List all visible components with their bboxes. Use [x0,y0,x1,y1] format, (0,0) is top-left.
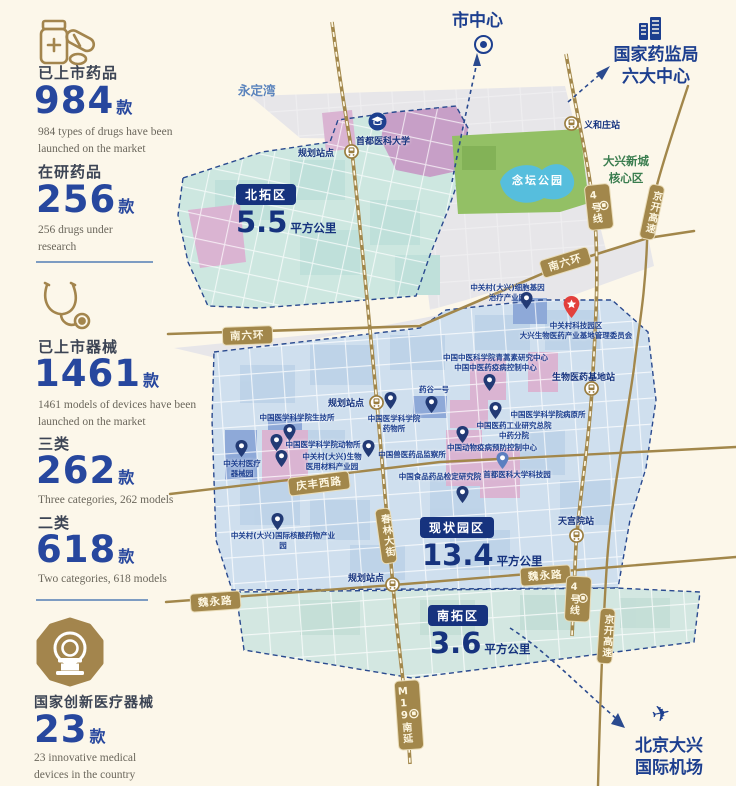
map-pin [456,426,469,443]
facility-label-animal-institute: 中国医学科学院动物所 [284,440,362,450]
map-pin [520,292,533,309]
planned-station-label: 规划站点 [348,571,384,584]
south-zone-area-number: 3.6 [430,626,481,660]
class-two-value: 618款 [36,531,134,568]
rail-badge-label: M19南延 [397,686,412,745]
innovative-device-unit: 款 [90,727,106,746]
city-center-icon [474,35,493,54]
class-two-caption: Two categories, 618 models [38,571,203,588]
device-launched-value: 1461款 [34,355,159,392]
niantan-park-label: 念坛公园 [512,172,564,188]
facility-label-management-committee: 中关村科技园区 大兴生物医药产业基地管理委员会 [516,321,636,341]
map-pin [425,396,438,413]
facility-label-biomedical-materials-park: 中关村(大兴)生物 医用材料产业园 [298,452,366,472]
metro-station-icon [584,381,599,396]
drug-launched-unit: 款 [116,98,132,117]
stethoscope-icon [38,280,94,336]
south-zone-badge: 南拓区 [428,605,488,626]
drug-launched-value: 984款 [34,82,132,119]
map-pin [496,452,509,469]
rail-badge-line4: 4号线 [564,575,592,622]
rail-badge-label: 4号线 [587,190,601,225]
planned-station-label: 规划站点 [298,146,334,159]
drug-launched-caption: 984 types of drugs have been launched on… [38,124,178,157]
metro-station-icon [569,528,584,543]
north-zone-area-number: 5.5 [236,205,287,239]
management-committee-pin [563,296,580,318]
innovative-device-number: 23 [34,708,88,751]
class-three-caption: Three categories, 262 models [38,492,203,509]
current-zone-badge: 现状园区 [420,517,494,538]
drug-research-value: 256款 [36,181,134,218]
metro-station-icon [385,577,400,592]
metro-station-icon [344,144,359,159]
rail-badge-label: 4号线 [567,581,579,616]
class-three-value: 262款 [36,452,134,489]
nmpa-centers-label: 国家药监局 六大中心 [598,44,714,88]
tiangongyuan-station-label: 天宫院站 [558,514,594,527]
drug-research-caption: 256 drugs under research [38,222,178,255]
facility-label-pathogen-institute: 中国医学科学院病原所 [508,410,588,420]
facility-label-biotech-institute: 中国医学科学院生技所 [258,413,336,423]
yihezhuang-station-label: 义和庄站 [584,118,620,131]
north-zone-area-unit: 平方公里 [290,221,336,235]
class-two-number: 618 [36,528,116,571]
class-three-unit: 款 [118,468,134,487]
device-launched-unit: 款 [143,371,159,390]
road-badge-weiyonglu: 魏永路 [189,590,241,612]
innovative-device-value: 23款 [34,711,106,748]
city-center-label: 市中心 [452,10,503,32]
drug-research-number: 256 [36,178,116,221]
university-icon [368,112,387,135]
innovative-device-caption: 23 innovative medical devices in the cou… [34,750,184,783]
facility-label-cmu-science-park: 首都医科大学科技园 [476,470,558,480]
metro-station-icon [369,395,384,410]
planned-station-label: 规划站点 [328,396,364,409]
daxing-airport-label: 北京大兴 国际机场 [614,735,724,779]
north-zone-area: 5.5平方公里 [236,208,336,237]
device-launched-number: 1461 [34,352,141,395]
metro-station-icon [564,116,579,131]
map-pin [271,513,284,530]
yongdingwan-label: 永定湾 [238,80,276,99]
facility-label-artemisinin-center: 中国中医科学院青蒿素研究中心 中国中医药疫病控制中心 [438,353,553,373]
north-zone-badge: 北拓区 [236,184,296,205]
facility-label-pharma-industry-tcm-branch: 中国医药工业研究总院 中药分院 [476,421,552,441]
rail-badge-m19-extension: M19南延 [394,679,424,751]
facility-label-cell-gene-park: 中关村(大兴)细胞基因 治疗产业园 [455,283,560,303]
drug-research-unit: 款 [118,197,134,216]
infographic-canvas: 已上市药品 984款 984 types of drugs have been … [0,0,736,786]
current-zone-area-number: 13.4 [422,538,494,572]
south-zone-area: 3.6平方公里 [430,629,530,658]
map-pin [235,440,248,457]
section-divider [36,261,153,263]
mri-scanner-icon [34,616,106,692]
map-pin [489,402,502,419]
south-zone-area-unit: 平方公里 [484,642,530,656]
class-two-unit: 款 [118,547,134,566]
map-pin [270,434,283,451]
class-three-number: 262 [36,449,116,492]
facility-label-animal-disease-control: 中国动物疫病预防控制中心 [446,443,538,453]
capital-medical-univ-label: 首都医科大学 [356,134,410,147]
device-launched-caption: 1461 models of devices have been launche… [38,397,198,430]
facility-label-nucleic-acid-drug-park: 中关村(大兴)国际核酸药物产业园 [228,531,338,551]
facility-label-pharma-institute: 中国医学科学院 药物所 [366,414,422,434]
section-divider [36,599,148,601]
road-badge-label: 京开高速 [599,614,613,659]
current-zone-area: 13.4平方公里 [422,541,543,570]
road-badge-nanliuhuan: 南六环 [222,325,273,346]
nmpa-building-icon [636,14,664,46]
map-pin [384,392,397,409]
facility-label-food-drug-testing-institute: 中国食品药品检定研究院 [398,472,482,482]
facility-label-veterinary-drug-inspection: 中国兽医药品监察所 [376,450,448,460]
map-pin [275,450,288,467]
daxing-newtown-core-label: 大兴新城 核心区 [588,153,664,186]
facility-label-yaogu-no1: 药谷一号 [410,385,458,395]
rail-badge-line4: 4号线 [584,183,614,231]
drug-launched-number: 984 [34,79,114,122]
road-badge-weiyonglu: 魏永路 [519,564,571,586]
map-pin [283,424,296,441]
map-pin [483,374,496,391]
facility-label-medical-device-park: 中关村医疗 器械园 [216,459,268,479]
map-pin [456,486,469,503]
map-pin [362,440,375,457]
